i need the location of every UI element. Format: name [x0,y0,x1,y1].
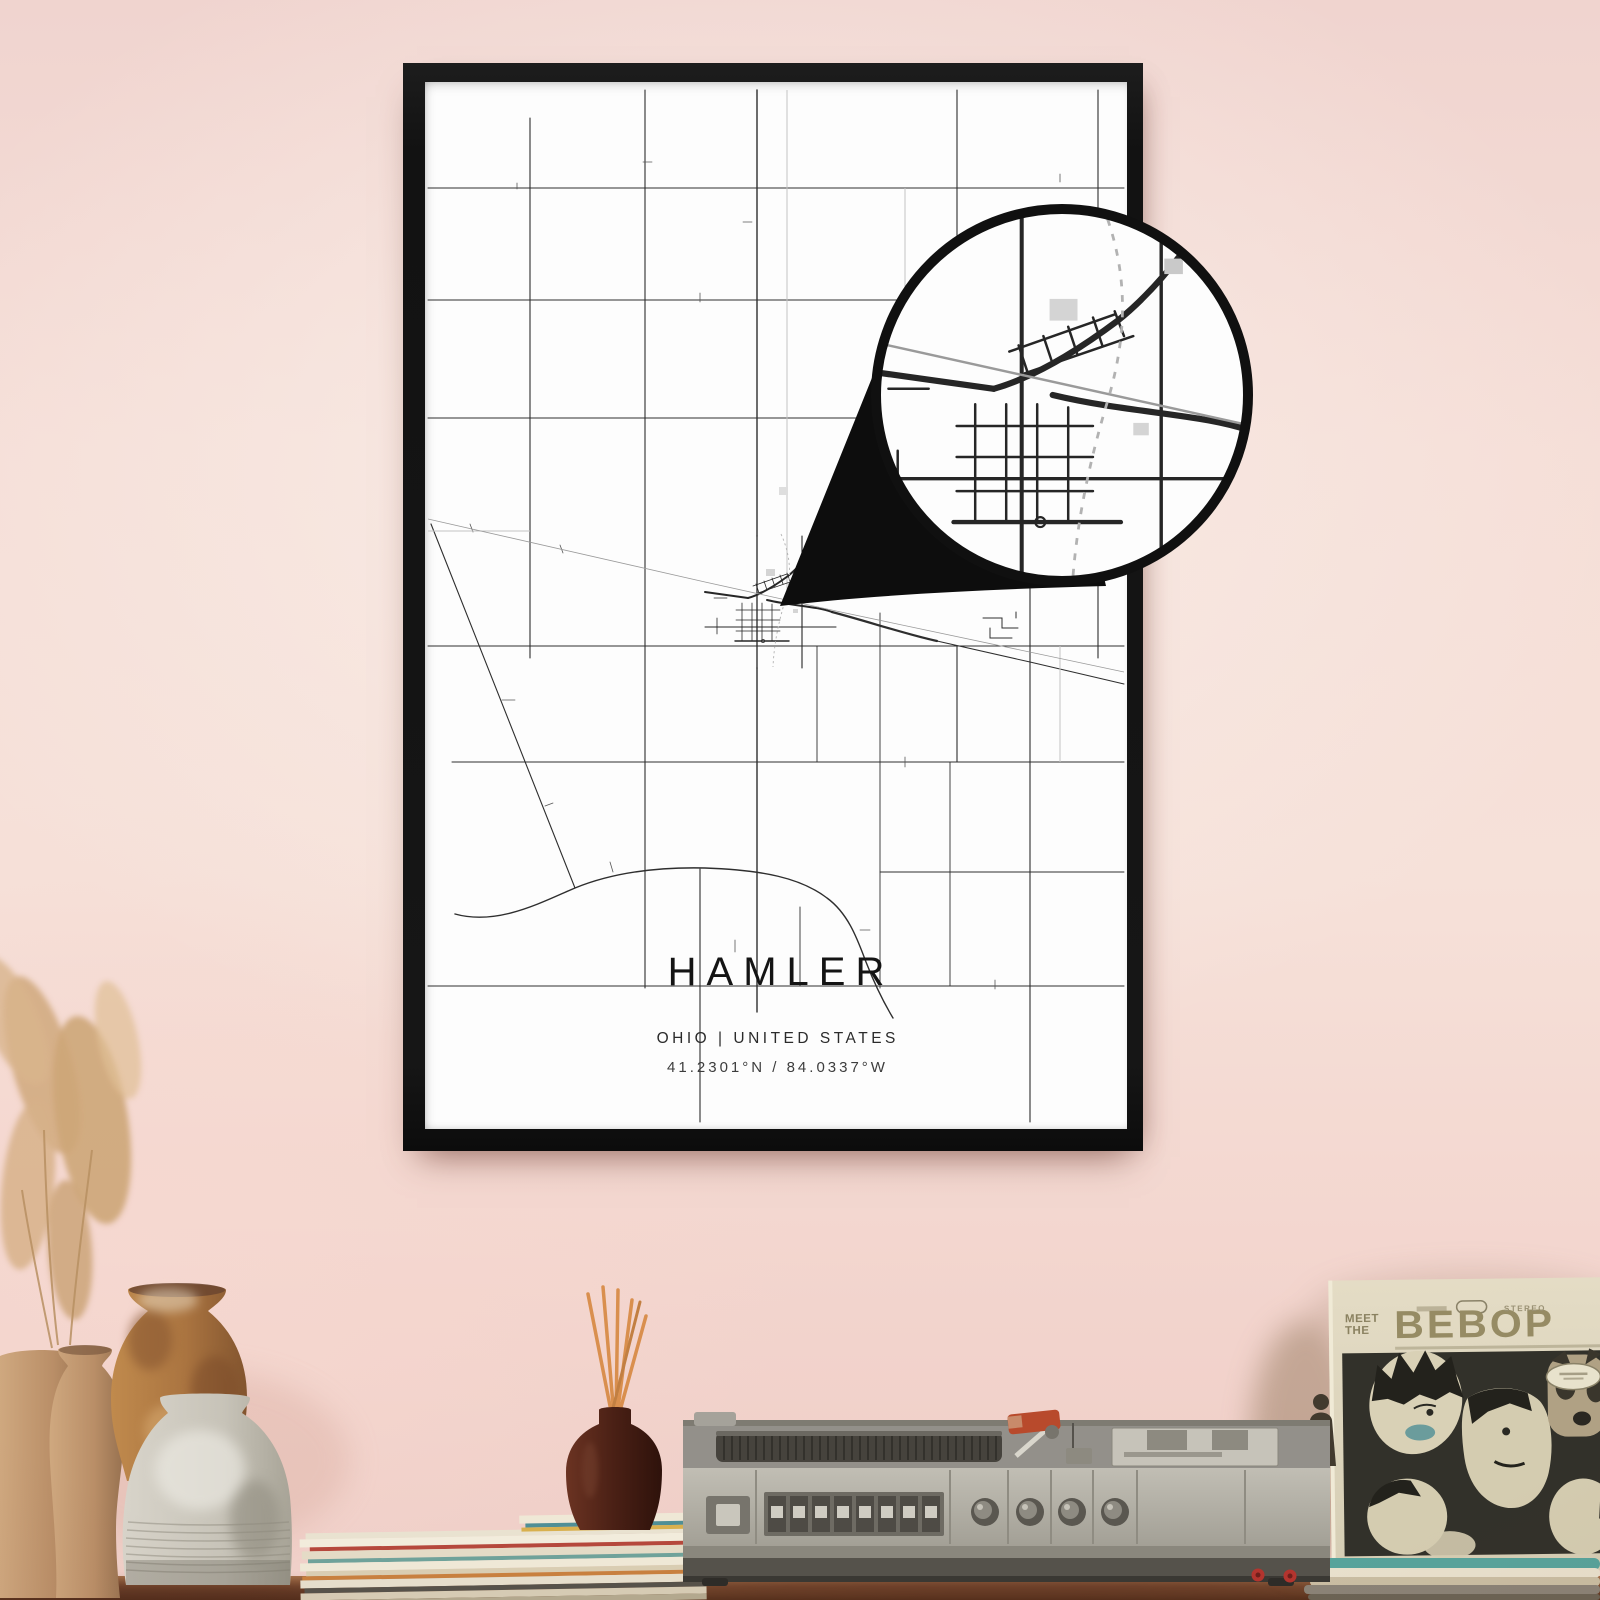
reed-diffuser [566,1287,662,1530]
album-title-the: THE [1345,1325,1370,1337]
power-button [706,1496,750,1534]
cassette-deck [1112,1428,1278,1466]
album-art [1342,1337,1600,1560]
album-badge [1546,1363,1600,1390]
album-title-meet: MEET [1345,1313,1379,1325]
room-scene: HAMLER OHIO | UNITED STATES 41.2301°N / … [0,0,1600,1600]
turntable-platter [716,1431,1002,1462]
shelf-decor [0,0,1600,1600]
album-stereo-label: STEREO [1504,1304,1546,1314]
record-stack [1304,1558,1600,1600]
record-player [683,1409,1330,1586]
preset-buttons [764,1492,944,1536]
pampas-grass [0,945,150,1348]
